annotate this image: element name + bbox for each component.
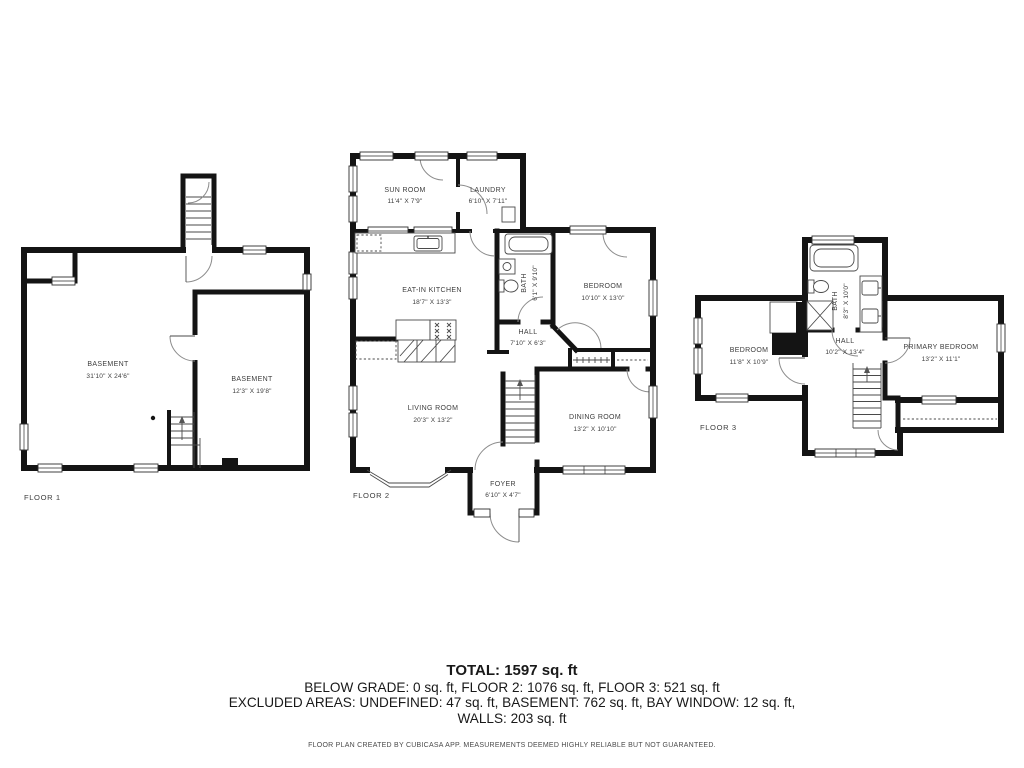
room-label-living-name: LIVING ROOM (408, 405, 459, 412)
floor1-door-gap (186, 245, 212, 254)
floor3-plan: BEDROOM 11'8" X 10'9" BATH 8'3" X 10'0" … (694, 236, 1005, 457)
floor3-label: FLOOR 3 (700, 423, 737, 432)
room-label-hall3-name: HALL (836, 338, 855, 345)
floor2-foyer-door-gap (490, 509, 519, 517)
room-label-dining-dims: 13'2" X 10'10" (573, 426, 617, 433)
room-label-hall3-dims: 10'2" X 13'4" (825, 349, 865, 356)
room-label-bath3-group: BATH 8'3" X 10'0" (832, 283, 850, 319)
floor3-bedroom-door-gap (801, 357, 809, 385)
room-label-foyer-name: FOYER (490, 481, 516, 488)
floor2-bay-window (367, 470, 451, 487)
floor1-label: FLOOR 1 (24, 493, 61, 502)
room-label-hall2-dims: 7'10" X 6'3" (510, 340, 546, 347)
room-label-kitchen-dims: 18'7" X 13'3" (412, 299, 452, 306)
room-label-living-dims: 20'3" X 13'2" (413, 417, 453, 424)
excluded-areas-text: EXCLUDED AREAS: UNDEFINED: 47 sq. ft, BA… (0, 695, 1024, 710)
room-label-basement2-name: BASEMENT (231, 376, 273, 383)
room-label-dining-name: DINING ROOM (569, 414, 621, 421)
room-label-basement1-name: BASEMENT (87, 361, 129, 368)
room-label-bath3-dims: 8'3" X 10'0" (843, 283, 850, 319)
room-label-kitchen-name: EAT-IN KITCHEN (402, 287, 462, 294)
floor2-closet-walls (570, 350, 653, 369)
floor2-bedroom-diagonal-wall (553, 326, 576, 350)
floor1-divider-door-gap (191, 335, 199, 360)
room-label-sunroom-dims: 11'4" X 7'9" (387, 198, 423, 205)
room-label-basement1-dims: 31'10" X 24'6" (86, 373, 130, 380)
floor2-foyer-top-gap (477, 466, 502, 474)
room-label-bath2-name: BATH (521, 273, 528, 293)
area-summary: TOTAL: 1597 sq. ft BELOW GRADE: 0 sq. ft… (0, 662, 1024, 726)
floor2-stairs (505, 375, 535, 443)
room-label-bedroom2-dims: 10'10" X 13'0" (581, 295, 625, 302)
floor2-label: FLOOR 2 (353, 491, 390, 500)
room-label-bath2-group: BATH 6'1" X 9'10" (521, 265, 539, 301)
room-label-bath2-dims: 6'1" X 9'10" (532, 265, 539, 301)
floor2-closet-rod (573, 357, 610, 363)
floor1-windows (20, 246, 311, 472)
floor2-plan: SUN ROOM 11'4" X 7'9" LAUNDRY 6'10" X 7'… (349, 152, 657, 542)
room-label-primary-dims: 13'2" X 11'1" (922, 356, 961, 363)
room-label-basement2-dims: 12'3" X 19'8" (232, 388, 272, 395)
room-label-foyer-dims: 6'10" X 4'7" (485, 492, 521, 499)
walls-area-text: WALLS: 203 sq. ft (0, 711, 1024, 726)
room-label-hall2-name: HALL (519, 329, 538, 336)
floor1-tower-door-arc (188, 182, 209, 203)
room-label-bedroom3-dims: 11'8" X 10'9" (730, 359, 769, 366)
floor-plan-page: BASEMENT 31'10" X 24'6" BASEMENT 12'3" X… (0, 0, 1024, 768)
floor3-closet (770, 302, 805, 355)
disclaimer-text: FLOOR PLAN CREATED BY CUBICASA APP. MEAS… (0, 742, 1024, 749)
room-label-sunroom-name: SUN ROOM (384, 187, 425, 194)
room-label-bedroom2-name: BEDROOM (584, 283, 623, 290)
room-label-laundry-dims: 6'10" X 7'11" (469, 198, 508, 205)
room-label-bath3-name: BATH (832, 291, 839, 311)
floor3-stairs (853, 363, 881, 428)
floor1-chimney-block (222, 458, 238, 467)
floor1-basement-door-arc (186, 256, 212, 282)
room-label-laundry-name: LAUNDRY (470, 187, 506, 194)
floor2-laundry-fixture (502, 207, 515, 222)
room-label-bedroom3-name: BEDROOM (730, 347, 769, 354)
floor2-hatched-area (356, 337, 455, 362)
room-label-primary-name: PRIMARY BEDROOM (903, 344, 978, 351)
floor1-plan: BASEMENT 31'10" X 24'6" BASEMENT 12'3" X… (20, 176, 311, 502)
floor-areas-text: BELOW GRADE: 0 sq. ft, FLOOR 2: 1076 sq.… (0, 680, 1024, 695)
floor2-stove (396, 320, 456, 340)
total-area-text: TOTAL: 1597 sq. ft (0, 662, 1024, 680)
floor-plan-canvas: BASEMENT 31'10" X 24'6" BASEMENT 12'3" X… (0, 0, 1024, 768)
floor2-foyer-door-arc (490, 513, 519, 542)
floor2-kitchen-counter (355, 233, 455, 253)
floor1-post-dot (151, 416, 155, 420)
